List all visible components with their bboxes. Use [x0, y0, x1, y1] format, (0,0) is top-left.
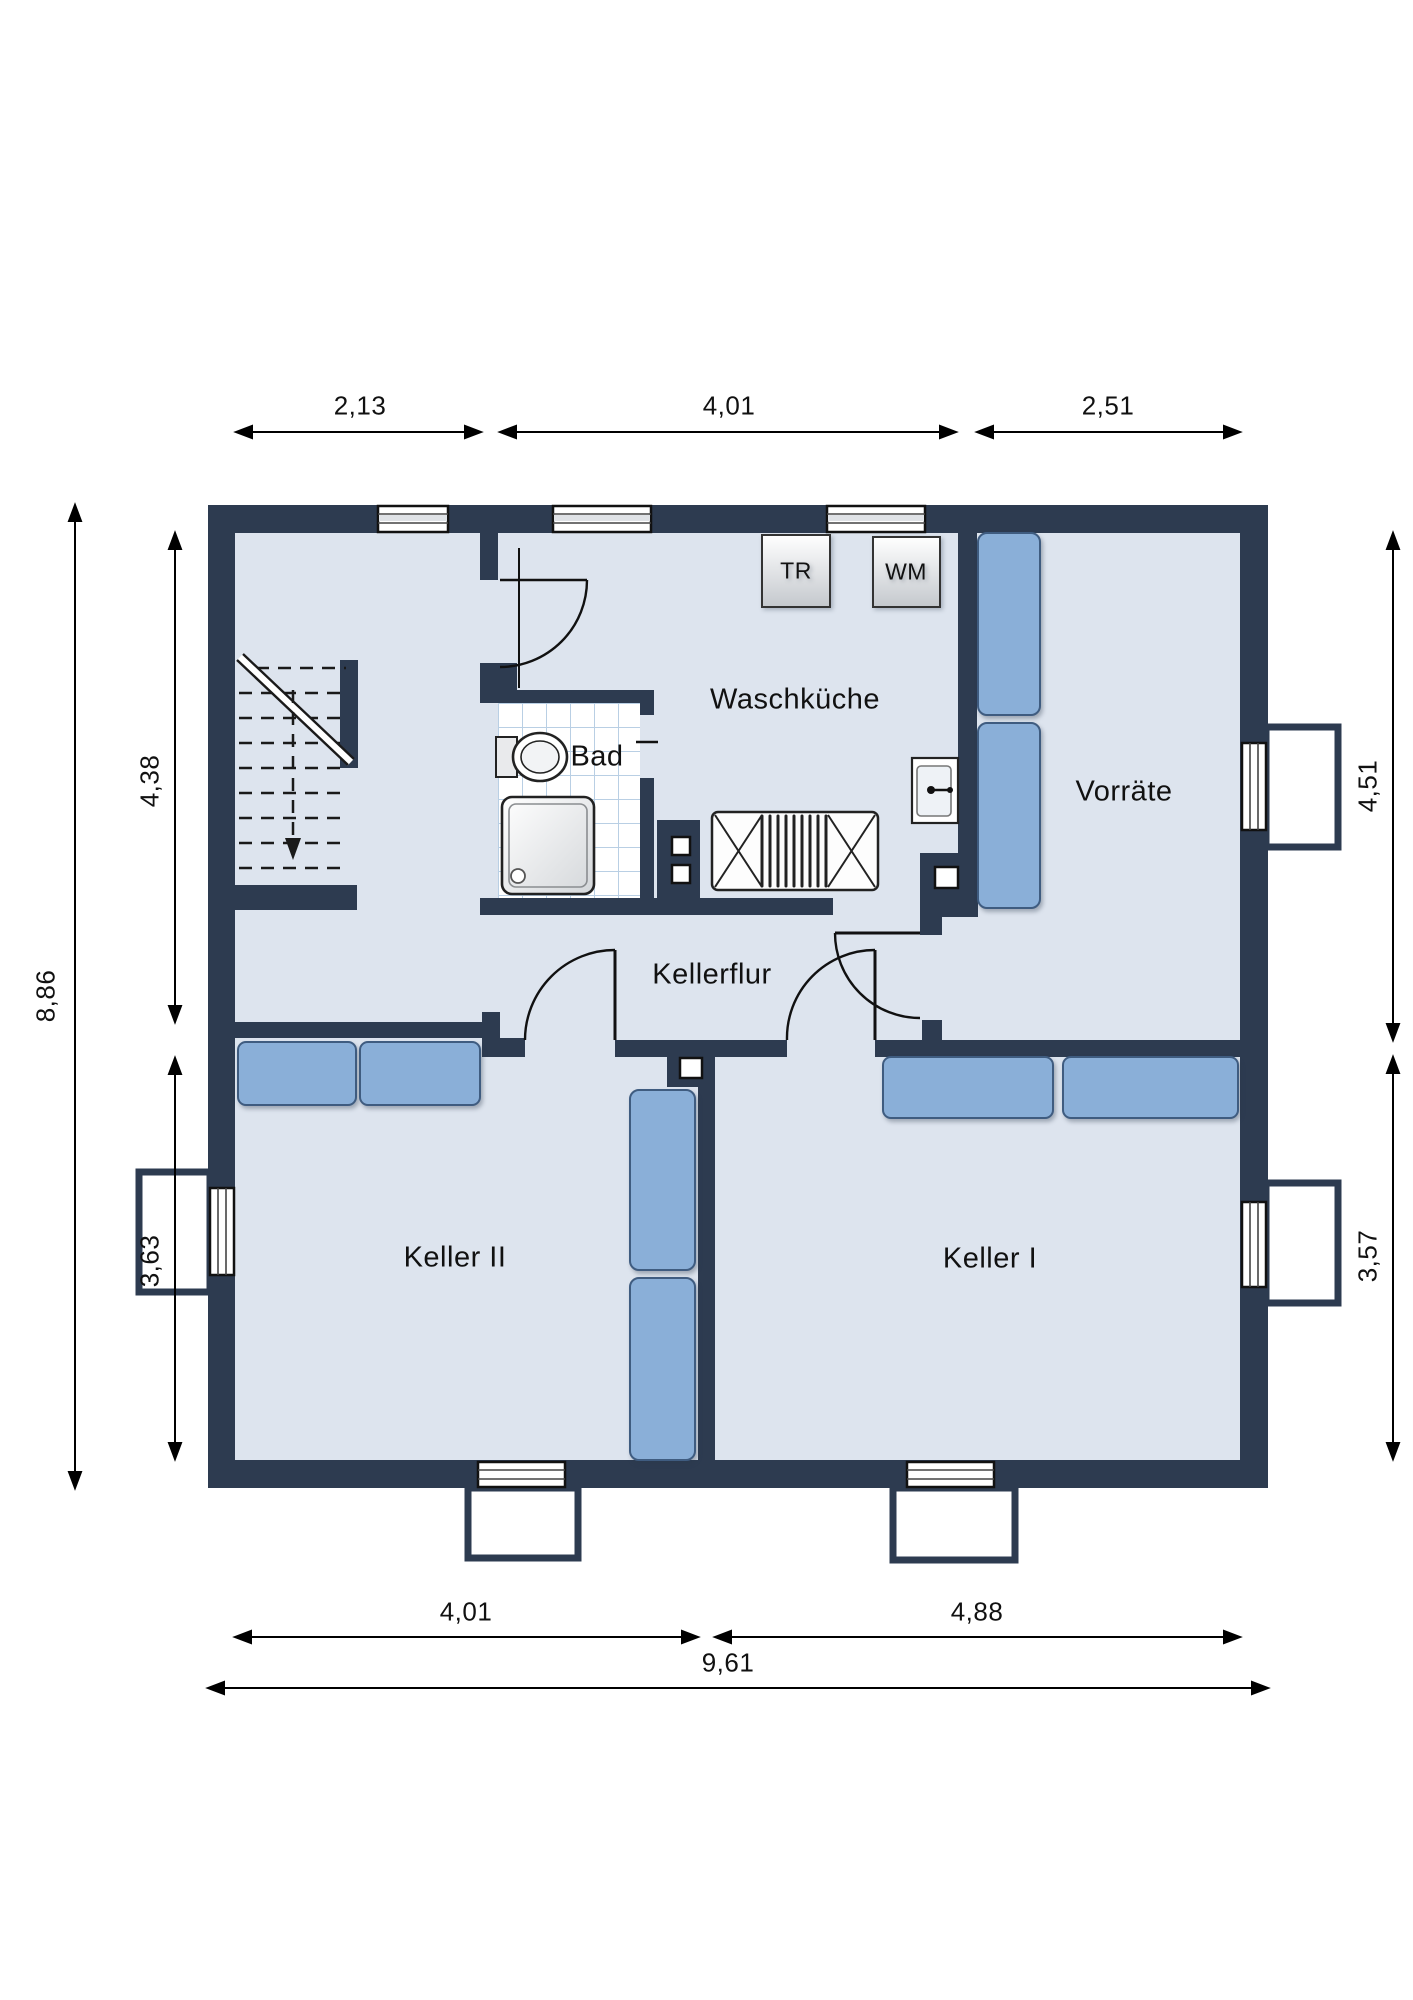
room-label-keller-2: Keller II [404, 1242, 507, 1275]
flue [935, 867, 958, 888]
wall-stair-waschkueche-upper [480, 533, 498, 580]
floor-plan-canvas: Waschküche Bad Vorräte Kellerflur Keller… [0, 0, 1413, 2000]
flue [680, 1058, 702, 1078]
light-well-bottom-left [468, 1488, 578, 1558]
dim-left-lower: 3,63 [135, 1235, 166, 1288]
shelf-keller1-left [883, 1057, 1053, 1118]
shelf-keller2-top-left [238, 1042, 356, 1105]
wall-outer-top [208, 505, 1268, 533]
light-well-right-upper [1266, 727, 1338, 847]
shelf-keller2-top-right [360, 1042, 480, 1105]
dim-left-total: 8,86 [31, 970, 62, 1023]
room-label-keller-1: Keller I [943, 1243, 1037, 1276]
wall-bad-east-lower [640, 778, 654, 900]
window-bottom-right [907, 1462, 994, 1487]
wall-bad-east-upper [640, 700, 654, 715]
wall-waschkueche-south [480, 898, 833, 915]
dim-left-upper: 4,38 [135, 755, 166, 808]
dim-top-waschkueche: 4,01 [703, 391, 756, 422]
flue [672, 837, 690, 855]
flue [672, 865, 690, 883]
wall-kellerflur-jog-a [482, 1012, 500, 1057]
appliance-label-dryer: TR [780, 558, 812, 585]
wall-outer-right [1240, 505, 1268, 1488]
wall-stair-room-south [226, 885, 357, 910]
drying-rack [712, 812, 878, 890]
floor-area [235, 533, 1240, 1460]
room-label-kellerflur: Kellerflur [652, 959, 771, 992]
shelf-keller2-mid-lower [630, 1278, 695, 1460]
dim-top-vorraete: 2,51 [1082, 391, 1135, 422]
shelf-keller1-right [1063, 1057, 1238, 1118]
shelf-keller2-mid-upper [630, 1090, 695, 1270]
wall-outer-bottom [208, 1460, 1268, 1488]
wall-kellerflur-jog-b [500, 1038, 525, 1057]
floor-plan-drawing [0, 0, 1413, 2000]
wall-kellerflur-south-east [875, 1040, 1240, 1057]
window-bottom-left [478, 1462, 565, 1487]
room-label-bad: Bad [570, 741, 623, 774]
appliance-label-washing-machine: WM [885, 559, 927, 586]
wall-vorraete-west [958, 533, 977, 853]
wall-door-stop-stub [922, 1020, 942, 1040]
room-label-vorraete: Vorräte [1076, 776, 1173, 809]
window-right-lower [1242, 1202, 1266, 1287]
room-label-waschkueche: Waschküche [710, 684, 880, 717]
wall-outer-left [208, 505, 235, 1488]
window-top-2 [553, 506, 651, 532]
light-well-right-lower [1266, 1183, 1338, 1303]
dim-top-stair-room: 2,13 [334, 391, 387, 422]
shelf-vorraete-upper [978, 533, 1040, 715]
light-well-bottom-right [893, 1488, 1015, 1560]
toilet [496, 733, 567, 781]
window-top-1 [378, 506, 448, 532]
shelf-vorraete-lower [978, 723, 1040, 908]
dim-bottom-total: 9,61 [702, 1648, 755, 1679]
wall-kellerflur-south-west [235, 1022, 500, 1038]
window-top-3 [827, 506, 925, 532]
dim-bottom-keller-2: 4,01 [440, 1597, 493, 1628]
wall-bad-north [480, 690, 654, 703]
utility-sink [912, 758, 958, 823]
wall-keller-divider [698, 1087, 715, 1460]
window-right-upper [1242, 743, 1266, 830]
wall-door-connector [920, 917, 942, 935]
shower [502, 797, 594, 894]
window-left [210, 1188, 234, 1275]
dim-bottom-keller-1: 4,88 [951, 1597, 1004, 1628]
dim-right-vorraete: 4,51 [1353, 760, 1384, 813]
dim-right-keller-1: 3,57 [1353, 1230, 1384, 1283]
